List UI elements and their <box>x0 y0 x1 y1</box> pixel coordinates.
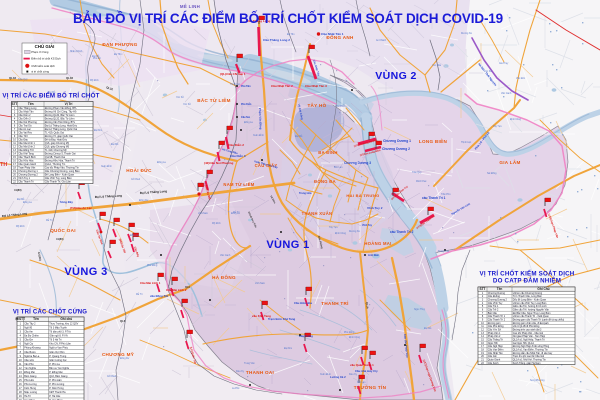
svg-text:Đông Dư: Đông Dư <box>139 200 149 202</box>
svg-text:Gần chợ Xốm: Gần chợ Xốm <box>49 351 64 354</box>
svg-text:Phạm Văn Đồng: Phạm Văn Đồng <box>258 108 263 130</box>
svg-text:Chốt kiểm soát dịch: Chốt kiểm soát dịch <box>31 64 55 68</box>
svg-text:(42)Cầu Noi Phương: (42)Cầu Noi Phương <box>204 161 233 165</box>
svg-text:HAI BÀ TRƯNG: HAI BÀ TRƯNG <box>346 193 379 198</box>
svg-text:Chương Dương 2: Chương Dương 2 <box>382 147 410 151</box>
svg-text:Phùng Khoang: Phùng Khoang <box>24 347 41 350</box>
svg-text:cầu Đồng Trữ: cầu Đồng Trữ <box>150 294 169 298</box>
svg-text:Trung Văn: Trung Văn <box>244 362 255 365</box>
svg-text:Cầu Thăng Long 2: Cầu Thăng Long 2 <box>263 38 290 42</box>
svg-text:Dương Xá: Dương Xá <box>349 231 360 233</box>
svg-text:THANH TRÌ: THANH TRÌ <box>321 299 349 306</box>
svg-text:Mễ Trì: Mễ Trì <box>46 219 53 222</box>
svg-text:Cầu Kênh: Cầu Kênh <box>488 362 499 365</box>
svg-text:Phú Lương: Phú Lương <box>24 383 37 386</box>
svg-text:Trung Hòa: Trung Hòa <box>438 250 449 253</box>
svg-text:Mỹ Đình: Mỹ Đình <box>90 79 99 82</box>
svg-text:Mậu Lương: Mậu Lương <box>24 391 37 394</box>
svg-text:LONG BIÊN: LONG BIÊN <box>419 137 448 144</box>
svg-text:Tây Tựu: Tây Tựu <box>493 126 502 128</box>
svg-text:VÙNG 2: VÙNG 2 <box>375 69 417 82</box>
svg-text:Thực Trường, khu 12 QSV: Thực Trường, khu 12 QSV <box>49 323 78 326</box>
svg-text:Cầu Noi: Cầu Noi <box>241 116 250 119</box>
svg-text:Cầu Am: Cầu Am <box>24 331 33 334</box>
svg-text:Định Công: Định Công <box>349 337 361 339</box>
svg-text:Đa Tốn: Đa Tốn <box>114 53 122 56</box>
svg-text:QUỐC OAI: QUỐC OAI <box>50 227 76 233</box>
svg-text:(TỰ)Cầu An Lạc: (TỰ)Cầu An Lạc <box>70 206 92 210</box>
svg-text:THANH OAI: THANH OAI <box>246 370 274 375</box>
svg-text:Kiêu Kỵ: Kiêu Kỵ <box>236 371 245 373</box>
svg-text:Song Phương: Song Phương <box>530 380 545 382</box>
svg-text:Ngõ 80: Ngõ 80 <box>24 327 33 330</box>
svg-text:Vân Canh: Vân Canh <box>220 255 231 257</box>
svg-text:Phù Đổng: Phù Đổng <box>344 331 355 334</box>
svg-text:cầu Thanh Trì 1: cầu Thanh Trì 1 <box>422 196 446 200</box>
svg-text:Cầu nhà máy Cty: Cầu nhà máy Cty <box>355 369 378 373</box>
svg-text:Đông La: Đông La <box>130 235 139 237</box>
svg-text:P. Phú La: P. Phú La <box>49 363 60 366</box>
svg-text:Tên: Tên <box>33 317 39 321</box>
svg-text:GIA LÂM: GIA LÂM <box>499 159 520 165</box>
svg-text:Nhân Chính: Nhân Chính <box>70 51 83 53</box>
svg-text:Tên: Tên <box>497 287 503 291</box>
svg-text:Yên Nghĩa: Yên Nghĩa <box>24 367 36 370</box>
svg-text:Đại Mỗ: Đại Mỗ <box>295 135 303 138</box>
svg-text:Phạm Vi Vùng: Phạm Vi Vùng <box>31 50 49 54</box>
svg-text:Lĩnh Nam: Lĩnh Nam <box>255 282 265 285</box>
svg-text:Văn Phú: Văn Phú <box>24 363 34 366</box>
svg-text:Đông La: Đông La <box>23 202 32 204</box>
svg-text:Phù Đổng: Phù Đổng <box>147 264 158 267</box>
svg-text:Yên Sở: Yên Sở <box>176 96 184 99</box>
svg-text:Đại Kim: Đại Kim <box>284 348 292 350</box>
svg-text:HOÀI ĐỨC: HOÀI ĐỨC <box>126 167 152 173</box>
svg-text:Tổ dân phố 3, P.Trả: Tổ dân phố 3, P.Trả <box>49 331 71 334</box>
svg-text:Trạm Bơm Khê Tang: Trạm Bơm Khê Tang <box>268 317 296 321</box>
svg-text:QL6, Biên Giang: QL6, Biên Giang <box>49 375 68 378</box>
svg-text:Lĩnh Nam: Lĩnh Nam <box>198 212 208 215</box>
svg-text:Ngã tư Vạn Phúc: Ngã tư Vạn Phúc <box>49 347 68 350</box>
svg-text:BẢN ĐỒ VỊ TRÍ CÁC ĐIỂM BỐ TRÍ: BẢN ĐỒ VỊ TRÍ CÁC ĐIỂM BỐ TRÍ CHỐT KIỂM … <box>73 11 503 26</box>
svg-text:Yên Sở: Yên Sở <box>484 70 492 73</box>
svg-text:Cầu Bươu: Cầu Bươu <box>24 351 36 354</box>
svg-text:NAM TỪ LIÊM: NAM TỪ LIÊM <box>223 182 254 187</box>
svg-text:Kiêu Kỵ: Kiêu Kỵ <box>349 374 358 376</box>
svg-text:Đại Kim: Đại Kim <box>94 130 102 132</box>
svg-text:Lường Xá 2: Lường Xá 2 <box>330 375 346 379</box>
svg-text:Ghi chú: Ghi chú <box>60 317 72 321</box>
svg-text:CHƯƠNG MỸ: CHƯƠNG MỸ <box>102 351 134 357</box>
svg-text:cầu Quán Gánh 1: cầu Quán Gánh 1 <box>350 363 374 367</box>
svg-text:Trâu Quỳ: Trâu Quỳ <box>18 78 28 81</box>
svg-text:P. Hà Cầu: P. Hà Cầu <box>49 395 61 398</box>
svg-text:Gia Thụy: Gia Thụy <box>499 63 509 65</box>
svg-text:VÙNG 1: VÙNG 1 <box>266 238 309 251</box>
svg-text:Đông La: Đông La <box>244 122 253 124</box>
svg-text:Thịnh Liệt: Thịnh Liệt <box>230 83 240 86</box>
svg-text:Tổ 5 Hà Trì: Tổ 5 Hà Trì <box>49 339 62 342</box>
svg-text:Phú Đô: Phú Đô <box>93 58 101 60</box>
svg-text:Trâu Quỳ: Trâu Quỳ <box>412 171 422 174</box>
svg-text:Trung Hòa: Trung Hòa <box>299 192 312 195</box>
svg-text:Đại Mỗ: Đại Mỗ <box>424 327 432 330</box>
svg-text:Gần ngõ 8, P.Yết: Gần ngõ 8, P.Yết <box>49 335 68 338</box>
svg-text:Mễ Trì: Mễ Trì <box>136 293 143 296</box>
svg-text:Cầu xóm: Cầu xóm <box>24 359 34 362</box>
svg-text:Xuân Đỉnh: Xuân Đỉnh <box>253 134 264 137</box>
svg-text:Cầu Thanh Trì, Gia Lâm: Cầu Thanh Trì, Gia Lâm <box>45 181 71 184</box>
svg-text:Thịnh Liệt: Thịnh Liệt <box>461 141 471 144</box>
svg-text:Phú Diễn: Phú Diễn <box>241 103 252 106</box>
svg-text:QL1A: QL1A <box>365 302 370 309</box>
svg-text:Cầu Thanh Trì: Cầu Thanh Trì <box>18 181 34 184</box>
svg-text:VỊ TRÍ CÁC CHỐT CỨNG: VỊ TRÍ CÁC CHỐT CỨNG <box>13 308 87 316</box>
svg-text:Cầu Diễn 2: Cầu Diễn 2 <box>228 143 244 147</box>
svg-text:Vị Trí: Vị Trí <box>65 102 73 106</box>
svg-text:Cầu Diễn 3: Cầu Diễn 3 <box>230 154 246 158</box>
svg-text:MÊ LINH: MÊ LINH <box>180 4 200 9</box>
svg-text:Ба Đо Chiêm: Ба Đо Chiêm <box>24 335 38 338</box>
svg-text:VỊ TRÍ CHỐT KIỂM SOÁT DỊCH: VỊ TRÍ CHỐT KIỂM SOÁT DỊCH <box>480 270 575 278</box>
svg-text:BA ĐÌNH: BA ĐÌNH <box>318 150 337 155</box>
svg-text:Yên Sở: Yên Sở <box>183 103 191 106</box>
svg-text:Tên: Tên <box>28 102 34 106</box>
svg-text:Cầu Nhật Tân 3: Cầu Nhật Tân 3 <box>305 84 327 88</box>
svg-text:Cổ Nhuế: Cổ Nhuế <box>107 375 117 378</box>
svg-text:TH: TH <box>0 162 7 168</box>
svg-text:THANH XUÂN: THANH XUÂN <box>302 211 333 216</box>
svg-text:HÀ ĐÔNG: HÀ ĐÔNG <box>212 273 236 280</box>
svg-text:Tổ 3 Mậu Tuyển: Tổ 3 Mậu Tuyển <box>49 327 67 330</box>
svg-text:Mễ Trì: Mễ Trì <box>233 211 240 214</box>
svg-text:P. Phú Lãm: P. Phú Lãm <box>49 379 61 382</box>
svg-text:Linh Đàm: Linh Đàm <box>368 254 379 257</box>
svg-text:Xuân Đỉnh: Xuân Đỉnh <box>320 373 331 376</box>
svg-text:Cầu Trống: Cầu Trống <box>299 334 313 338</box>
svg-text:Đại Mỗ: Đại Mỗ <box>17 198 25 201</box>
svg-text:TÂY HỒ: TÂY HỒ <box>307 102 326 108</box>
svg-text:Kiến Hưng: Kiến Hưng <box>24 387 36 390</box>
svg-text:41(80): 41(80) <box>14 188 22 192</box>
svg-text:DO CATP ĐẢM NHIỆM: DO CATP ĐẢM NHIỆM <box>493 277 561 285</box>
svg-text:P. Quang Trung: P. Quang Trung <box>49 355 67 358</box>
svg-text:STT: STT <box>11 102 17 106</box>
svg-text:Ngọc Thụy: Ngọc Thụy <box>414 309 426 311</box>
svg-text:QL32: QL32 <box>66 76 73 80</box>
svg-text:Ngõ Cty: Ngõ Cty <box>24 343 34 346</box>
svg-text:VÙNG 3: VÙNG 3 <box>64 265 107 278</box>
svg-text:Chương Dương 1: Chương Dương 1 <box>383 139 411 143</box>
svg-text:Hà Trì: Hà Trì <box>24 395 31 398</box>
svg-text:QL6: QL6 <box>120 319 126 323</box>
svg-text:Minh Khai: Minh Khai <box>416 181 427 183</box>
svg-text:P. Phú Lương: P. Phú Lương <box>49 383 65 386</box>
svg-text:KĐT Thanh Hà: KĐT Thanh Hà <box>49 391 66 394</box>
svg-text:P. Kiến Hưng: P. Kiến Hưng <box>49 387 64 390</box>
svg-text:Xuân Đỉnh: Xuân Đỉnh <box>101 165 112 168</box>
svg-text:BẮC TỪ LIÊM: BẮC TỪ LIÊM <box>197 96 230 103</box>
svg-text:Kênh Trắng, giáp Hà Nam: Kênh Trắng, giáp Hà Nam <box>513 362 541 365</box>
svg-text:Chương Dương 3: Chương Dương 3 <box>344 161 371 165</box>
svg-text:Vân Canh: Vân Canh <box>501 93 512 95</box>
svg-text:Định Công: Định Công <box>335 233 347 235</box>
svg-text:Phú Lãm: Phú Lãm <box>24 379 34 382</box>
svg-text:Ghi Chú: Ghi Chú <box>537 287 549 291</box>
svg-text:Mỹ Đình: Mỹ Đình <box>212 222 221 225</box>
svg-text:Đa Tốn: Đa Tốn <box>287 33 295 36</box>
svg-text:Yên Hòa: Yên Hòa <box>432 65 442 67</box>
svg-text:vị trí chốt cứng: vị trí chốt cứng <box>31 70 49 74</box>
svg-text:Cầu Mai Lĩnh 2: Cầu Mai Lĩnh 2 <box>166 288 187 292</box>
svg-text:Đại Mỗ: Đại Mỗ <box>111 143 119 146</box>
svg-text:Đông Dư: Đông Dư <box>120 358 130 360</box>
svg-text:Bến xe Yên Nghĩa: Bến xe Yên Nghĩa <box>49 367 69 370</box>
svg-text:cầu Thanh Trì 2: cầu Thanh Trì 2 <box>390 230 414 234</box>
svg-text:Cầu Nhật Tân 1: Cầu Nhật Tân 1 <box>321 32 344 36</box>
svg-text:QL32: QL32 <box>9 76 16 80</box>
svg-text:Cầu Hữu Hòa: Cầu Hữu Hòa <box>294 301 312 305</box>
svg-text:Tây Tựu: Tây Tựu <box>329 227 338 229</box>
svg-text:(QL)Cầu CN mại 1: (QL)Cầu CN mại 1 <box>220 72 246 76</box>
svg-text:Sài Đồng: Sài Đồng <box>487 172 497 175</box>
svg-text:41(80): 41(80) <box>56 237 64 241</box>
svg-text:Trần Phú: Trần Phú <box>441 193 451 196</box>
svg-text:CHÚ GIẢI: CHÚ GIẢI <box>35 44 55 49</box>
svg-text:ĐAN PHƯỢNG: ĐAN PHƯỢNG <box>102 42 137 47</box>
svg-text:Sông Đáy: Sông Đáy <box>60 200 73 204</box>
svg-text:Cổ Nhuế: Cổ Nhuế <box>131 178 141 181</box>
svg-text:Trần Phú: Trần Phú <box>335 105 345 108</box>
svg-text:Cầu Đơ: Cầu Đơ <box>24 339 33 342</box>
svg-text:Cầu Nhật Tân 2: Cầu Nhật Tân 2 <box>271 84 293 88</box>
svg-text:Biên Giang: Biên Giang <box>24 375 37 378</box>
svg-text:Cầu Mai Lĩnh 1: Cầu Mai Lĩnh 1 <box>140 281 161 285</box>
svg-text:Vĩnh Tuy 2: Vĩnh Tuy 2 <box>367 206 383 210</box>
svg-text:Cầu Tây 2: Cầu Tây 2 <box>24 323 36 326</box>
svg-text:STT: STT <box>480 287 486 291</box>
svg-text:Khu CN, P.Phú Lãm: Khu CN, P.Phú Lãm <box>49 343 71 346</box>
svg-text:P. Đồng Mai: P. Đồng Mai <box>49 371 63 374</box>
svg-text:Phú Văn: Phú Văn <box>241 85 251 88</box>
svg-text:Mỹ Đình: Mỹ Đình <box>16 225 25 228</box>
svg-text:Định Công: Định Công <box>510 119 522 121</box>
svg-text:Gần trường học: Gần trường học <box>49 359 67 362</box>
svg-text:Ngã ba Ba La: Ngã ba Ba La <box>24 355 40 358</box>
svg-text:ĐỐNG ĐA: ĐỐNG ĐA <box>314 179 336 184</box>
svg-text:Vĩnh Tuy: Vĩnh Tuy <box>362 224 373 227</box>
svg-text:Kim Lan: Kim Lan <box>357 382 366 384</box>
svg-text:Đông La: Đông La <box>157 162 166 164</box>
svg-text:Văn Đức: Văn Đức <box>516 77 526 80</box>
svg-text:An Khánh: An Khánh <box>376 39 387 42</box>
svg-text:Kim Lan: Kim Lan <box>334 167 343 169</box>
svg-text:Đồng Mai: Đồng Mai <box>24 371 35 374</box>
svg-text:Dương Xá: Dương Xá <box>461 33 472 35</box>
svg-text:La Phù: La Phù <box>232 388 240 390</box>
svg-text:VỊ TRÍ CÁC ĐIỂM BỐ TRÍ CHỐT: VỊ TRÍ CÁC ĐIỂM BỐ TRÍ CHỐT <box>2 92 99 100</box>
svg-text:Điểm bố trí chốt KS Dịch: Điểm bố trí chốt KS Dịch <box>31 57 61 61</box>
svg-text:HOÀNG MAI: HOÀNG MAI <box>364 241 391 246</box>
